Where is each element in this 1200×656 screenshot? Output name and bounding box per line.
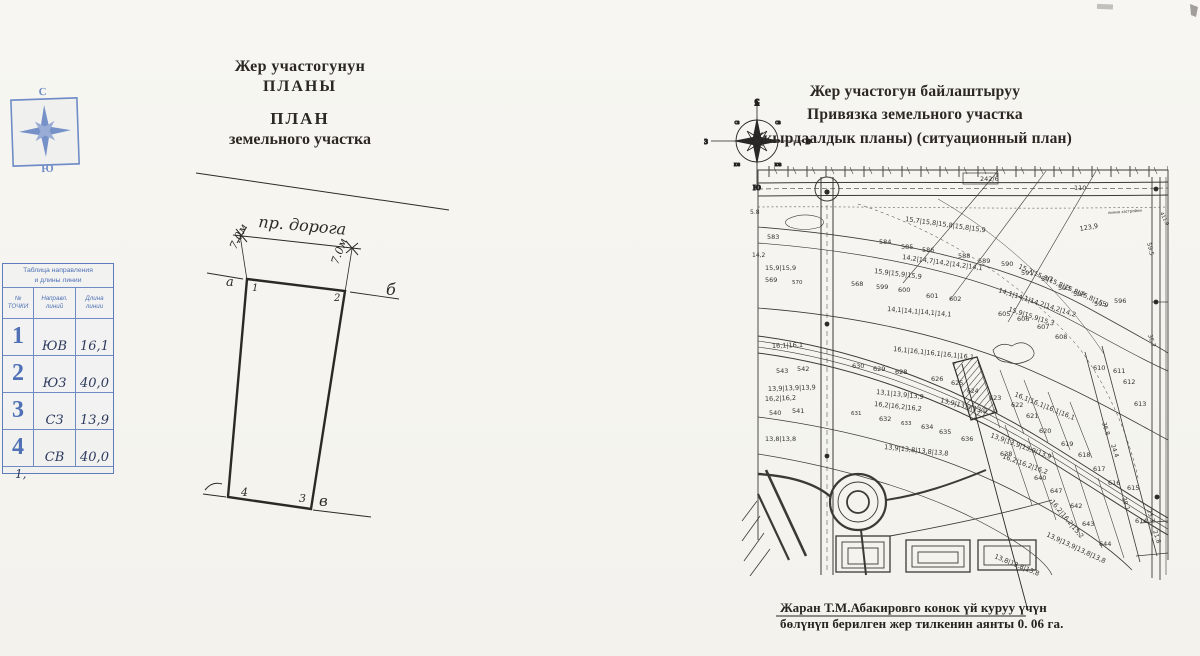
map-label: 570: [792, 280, 803, 286]
map-label: 620: [1039, 427, 1051, 435]
map-label: 16,2|16,2|16,2: [874, 400, 922, 413]
map-label: 13,9|13,8|13,8|13,8: [884, 443, 949, 458]
map-label: 39.1: [1120, 496, 1131, 511]
scanned-land-plan-document: Жер участогунун ПЛАНЫ ПЛАН земельного уч…: [0, 0, 1200, 656]
map-label: 596: [1114, 297, 1126, 305]
stamp-north-letter: С: [38, 86, 46, 98]
separator-line: [196, 173, 449, 210]
map-label: линия застройки: [1108, 208, 1143, 215]
map-label: 541: [792, 407, 804, 415]
drawing-label: пр. дорога: [258, 212, 347, 239]
map-label: 644: [1099, 540, 1111, 548]
scan-vector-layer: пр. дорога7.0м7.0м1234абв С Ю С Ю З В СЗ…: [0, 0, 1200, 656]
scan-smudge-top: [1097, 4, 1113, 10]
map-label: 623: [989, 394, 1001, 402]
map-label: 569: [765, 276, 777, 284]
map-label: 636: [961, 435, 973, 443]
compass-sw: ЮЗ: [734, 162, 740, 167]
map-label: 5.8: [750, 209, 760, 216]
map-label: 540: [769, 409, 781, 417]
map-label: 590: [1001, 260, 1013, 268]
compass-e: В: [806, 138, 811, 146]
map-label: 605: [998, 310, 1010, 318]
map-label: 612: [1123, 378, 1135, 386]
map-label: 635: [939, 428, 951, 436]
scan-smudge-corner: [1190, 4, 1198, 17]
map-label: 624: [967, 388, 979, 395]
map-label: 622: [1011, 401, 1023, 409]
map-label: 619: [1061, 440, 1073, 448]
map-label: 628: [895, 368, 907, 376]
map-label: 617: [1093, 465, 1105, 473]
stamp-south-letter: Ю: [41, 163, 54, 175]
map-label: 631: [851, 411, 862, 417]
map-top-ticks: [759, 166, 1168, 177]
map-label: 606: [1017, 315, 1029, 323]
map-label: 123,9: [1079, 222, 1099, 233]
map-label: 608: [1055, 333, 1067, 341]
map-label: 630: [852, 362, 864, 370]
map-label: 13,9|13,9|13,9|13,9: [989, 431, 1052, 461]
roundabout-top: [815, 177, 839, 201]
map-label: 59.5: [1145, 242, 1155, 257]
map-label: 633: [901, 421, 912, 427]
drawing-label: 3: [299, 492, 306, 505]
map-label: 15,9|15,9: [765, 264, 796, 272]
map-label: 634: [921, 423, 933, 431]
map-label: 13,1|13,9|13,9: [876, 388, 924, 401]
plot-drawing-labels: пр. дорога7.0м7.0м1234абв: [226, 212, 396, 510]
map-label: 584: [879, 238, 891, 246]
map-label: 642: [1070, 502, 1082, 510]
map-label: 16,1|16,1|16,1|16,1|16,1: [893, 345, 975, 361]
drawing-label: б: [386, 280, 396, 299]
map-label: 610: [1093, 364, 1105, 372]
map-label: 615: [1127, 484, 1139, 492]
compass-stamp: С Ю: [10, 85, 79, 176]
map-label: 602: [949, 295, 961, 303]
map-label: 583: [767, 233, 779, 241]
map-label: 614: [1135, 517, 1147, 525]
map-label: 621: [1026, 412, 1038, 420]
map-label: 611: [1113, 367, 1125, 375]
map-label: 599: [876, 283, 888, 291]
map-label: 638: [1000, 450, 1012, 458]
map-label: 626: [931, 375, 943, 383]
map-label: 618: [1078, 451, 1090, 459]
map-label: 613: [1134, 400, 1146, 408]
map-label: 629: [873, 365, 885, 373]
hand-hook-mark: [205, 483, 222, 490]
map-label: 13,8|13,8: [765, 435, 796, 443]
map-label: 625: [951, 379, 963, 387]
drawing-label: 4: [240, 486, 248, 499]
map-label: 14,2: [752, 252, 766, 259]
map-label: 647: [1050, 487, 1062, 495]
map-label: 242/6: [980, 175, 999, 183]
map-label: 586: [922, 246, 934, 254]
map-label: 643: [1082, 520, 1094, 528]
map-label: 16,1|16,1: [772, 341, 803, 350]
compass-n: С: [754, 98, 759, 106]
map-label: 607: [1037, 323, 1049, 331]
map-label: 640: [1034, 474, 1046, 482]
map-label: 14,2|14,7|14,2|14,2|14,1: [902, 253, 983, 272]
compass-rose: С Ю З В СЗ СВ ЮЗ ЮВ: [704, 98, 811, 192]
map-label: 585: [901, 243, 913, 251]
map-label: 600: [898, 286, 910, 294]
drawing-label: в: [319, 492, 328, 510]
map-label: 568: [851, 280, 863, 288]
map-label: 616: [1108, 479, 1120, 487]
map-label: 632: [879, 415, 891, 423]
drawing-label: 2: [333, 293, 340, 304]
compass-star-main: [733, 117, 781, 165]
map-label: 16,2|16,2: [765, 394, 796, 403]
compass-w: З: [704, 138, 708, 146]
parcel-boundaries: [978, 362, 1124, 558]
map-label: 15,7|15,8|15,8|15,8|15,9: [905, 215, 986, 234]
drawing-label: 1: [252, 283, 258, 294]
compass-s: Ю: [753, 184, 761, 192]
drawing-label: 7.0м: [329, 237, 350, 266]
map-label: 13,9|13,9|13,9: [768, 383, 816, 393]
map-label: 601: [926, 292, 938, 300]
compass-nw: СЗ: [735, 120, 740, 125]
map-label: 543: [776, 367, 788, 375]
map-label: 14,1|14,1|14,1|14,1: [887, 305, 952, 319]
map-label: 589: [978, 257, 990, 265]
map-label: 36.8: [1100, 421, 1111, 436]
land-parcel-outline: [228, 279, 345, 509]
map-label: 588: [958, 252, 970, 260]
survey-points: [824, 187, 1159, 500]
map-label: 542: [797, 365, 809, 373]
compass-ne: СВ: [775, 120, 781, 125]
map-label: 110: [1074, 184, 1086, 192]
drawing-label: а: [226, 275, 234, 290]
